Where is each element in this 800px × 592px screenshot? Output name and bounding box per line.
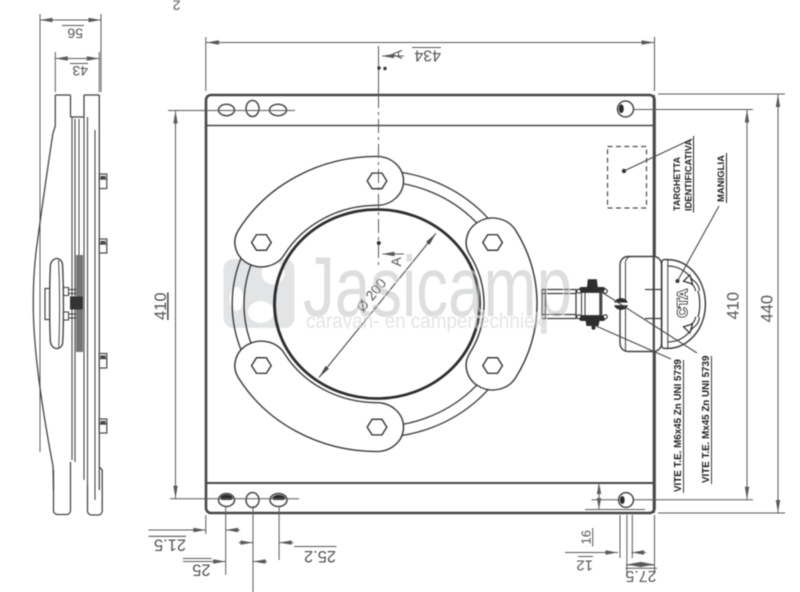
svg-text:434: 434 xyxy=(414,47,441,64)
svg-text:25: 25 xyxy=(192,561,210,579)
svg-text:VITE T.E. M6x45 Zn UNI 5739: VITE T.E. M6x45 Zn UNI 5739 xyxy=(673,359,684,492)
svg-text:410: 410 xyxy=(152,292,170,320)
svg-text:410: 410 xyxy=(725,292,743,320)
svg-text:25.2: 25.2 xyxy=(304,547,336,565)
svg-text:21.5: 21.5 xyxy=(154,536,186,554)
svg-text:12: 12 xyxy=(576,557,593,574)
svg-text:27.5: 27.5 xyxy=(625,567,656,584)
svg-text:TARGHETTA: TARGHETTA xyxy=(672,156,682,211)
svg-text:IDENTIFICATIVA: IDENTIFICATIVA xyxy=(684,139,694,211)
svg-text:CTA: CTA xyxy=(674,289,690,318)
svg-text:2: 2 xyxy=(173,0,181,14)
svg-text:16: 16 xyxy=(579,530,594,544)
svg-text:MANIGLIA: MANIGLIA xyxy=(716,155,727,202)
svg-text:caravan- en campertechniek: caravan- en campertechniek xyxy=(306,310,544,333)
svg-text:43: 43 xyxy=(72,63,88,79)
svg-text:VITE T.E. Mx45 Zn UNI 5739: VITE T.E. Mx45 Zn UNI 5739 xyxy=(701,355,712,483)
svg-text:56: 56 xyxy=(67,26,83,42)
svg-text:A: A xyxy=(389,49,405,59)
svg-text:440: 440 xyxy=(759,295,777,323)
